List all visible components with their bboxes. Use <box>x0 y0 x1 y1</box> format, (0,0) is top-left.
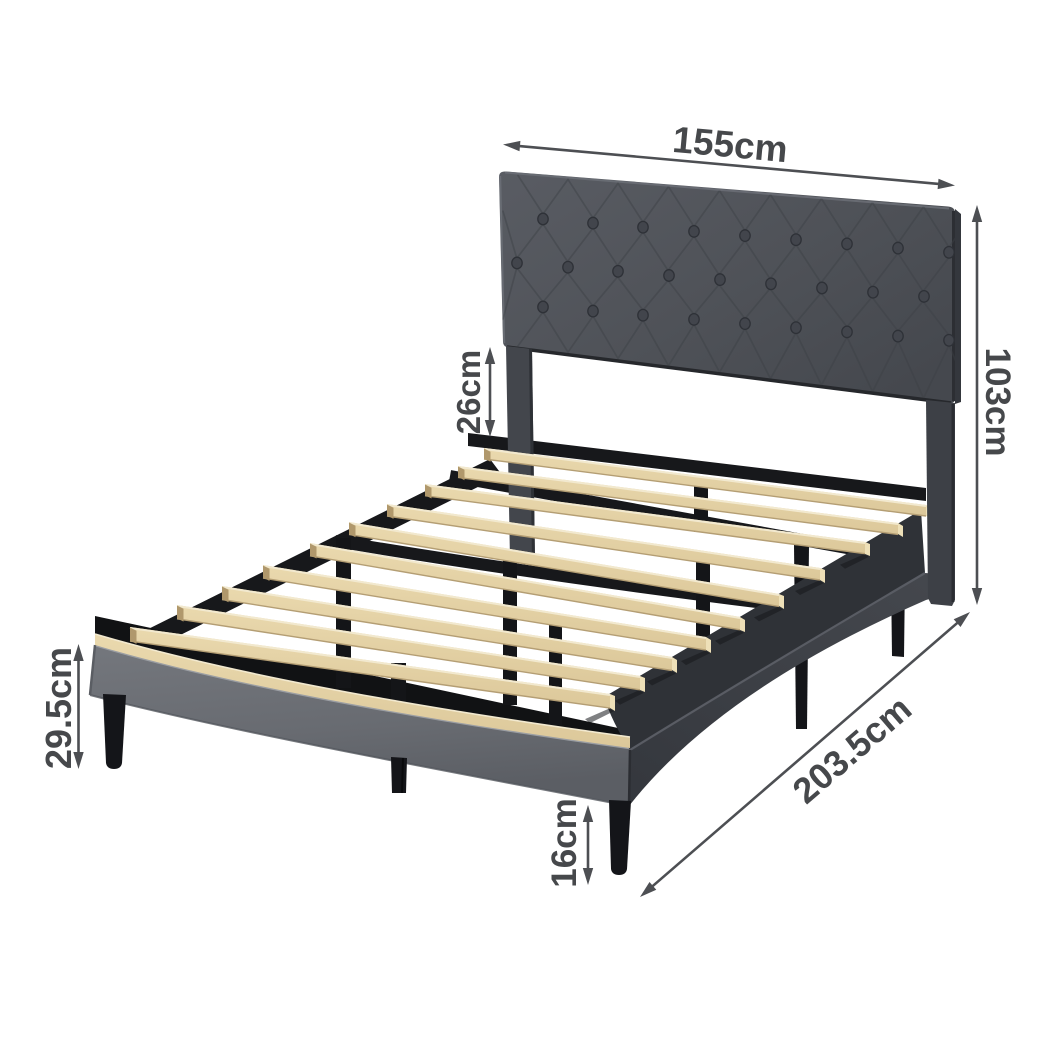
svg-text:16cm: 16cm <box>545 798 584 888</box>
svg-text:26cm: 26cm <box>450 350 487 434</box>
svg-text:29.5cm: 29.5cm <box>38 647 79 769</box>
svg-text:103cm: 103cm <box>978 348 1017 457</box>
